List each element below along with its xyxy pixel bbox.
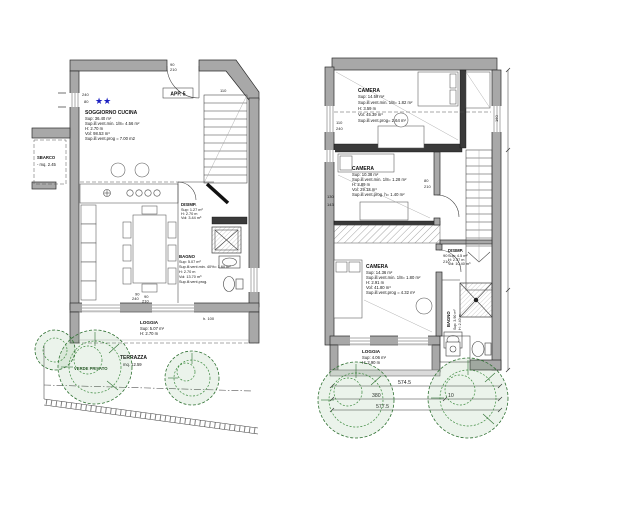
window-dim: 240 <box>336 126 343 131</box>
desk <box>378 126 424 148</box>
window-opening <box>324 150 335 162</box>
dim-total: 574.5 <box>398 380 411 386</box>
room-label-disimp-left: DISIMP. Sup: 1.27 m² H: 2.70 m Vol: 3.44… <box>181 202 203 220</box>
corridor-wall <box>434 218 440 225</box>
stair-dim: 110 <box>220 88 227 93</box>
interior-wall-b-edge <box>334 221 440 225</box>
tree <box>165 351 219 405</box>
sbarco-area: - mq. 2.45 <box>37 162 57 167</box>
chair <box>168 222 176 238</box>
stool <box>135 163 149 177</box>
bagno-title: BAGNO <box>446 311 451 327</box>
bagno-title: BAGNO <box>179 254 196 259</box>
pillow <box>450 74 456 88</box>
chair <box>416 298 432 314</box>
disimp-stat: Vol: 3.44 m³ <box>181 216 202 220</box>
floor-plan-drawing: 90 210 APP. 5 ★★ 240 80 SBARCO - mq. 2.4… <box>0 0 621 525</box>
toilet-icon <box>472 342 484 357</box>
dining-table: 90 210 <box>123 206 176 304</box>
bagno-stat: H: 2.40 m <box>458 314 462 330</box>
disimp-stat: Vol: 10.40 m³ <box>448 262 471 266</box>
disimp-title: DISIMP. <box>448 248 463 253</box>
shower <box>460 283 492 317</box>
toilet-tank <box>485 343 491 355</box>
sbarco-wall <box>32 128 70 138</box>
sbarco-title: SBARCO <box>37 155 56 160</box>
door-dim: 210 <box>424 184 431 189</box>
partition-dark <box>212 217 247 224</box>
window-dim: 90 <box>135 292 140 297</box>
loggia-stat: H: 2.70 m <box>140 331 159 336</box>
tree <box>318 362 394 438</box>
door-dim: 80 <box>424 178 429 183</box>
soggiorno-stat: Sup.ill.vent.prog = 7.00 m2 <box>85 136 136 141</box>
loggia-title: LOGGIA <box>362 349 381 354</box>
camera-top-stat: Sup.ill.vent.prog= 2.64 m² <box>358 118 406 123</box>
bagno-stat: H: 2.70 m <box>179 270 195 274</box>
dim-143: 143 <box>327 202 334 207</box>
chair <box>123 268 131 284</box>
toilet-tank <box>236 279 243 289</box>
corridor-wall <box>434 152 440 195</box>
desk <box>360 202 408 220</box>
entry-door-height-dim: 210 <box>170 67 177 72</box>
camera-top-stat: Vol: 45.39 m³ <box>358 112 383 117</box>
door-leaf-black <box>207 184 228 203</box>
loggia-wall-right <box>249 312 259 343</box>
shower-drain <box>474 298 478 302</box>
tree <box>428 358 508 438</box>
window-dim-80: 80 <box>84 99 89 104</box>
chair <box>142 206 157 214</box>
apartment-label: APP. 5 <box>170 92 185 98</box>
chair <box>168 268 176 284</box>
parapet-height: h. 100 <box>203 316 215 321</box>
sbarco-wall <box>32 182 56 189</box>
window-dim: 240 <box>132 296 139 301</box>
loggia-wall <box>432 345 440 372</box>
bagno-stat: Vol: 13.70 m³ <box>179 275 202 279</box>
room-camera-top: CAMERA Sup: 14.59 m² Sup.ill.vent.min. 1… <box>334 72 491 148</box>
chair <box>142 284 157 292</box>
boiler <box>446 342 460 356</box>
camera-low-stat: Sup.ill.vent.prog = 4.32 m² <box>366 290 416 295</box>
loggia-title: LOGGIA <box>140 320 159 325</box>
camera-top-stat: Sup: 14.59 m² <box>358 94 385 99</box>
window-opening <box>350 335 370 346</box>
disimp-door-arc <box>178 182 196 200</box>
shower <box>212 227 241 253</box>
pillow <box>336 262 347 272</box>
window-dim-160: 160 <box>494 115 499 122</box>
table-dim-l: 210 <box>142 299 149 304</box>
wall-angled <box>199 60 259 100</box>
kitchen-counter <box>80 163 178 203</box>
pillow <box>340 156 352 170</box>
wall-top <box>332 58 497 70</box>
window-opening <box>82 302 120 313</box>
camera-top-stat: Sup.ill.vent.min. 1/8= 1.82 m² <box>358 100 413 105</box>
bagno-stat: Sup: 5.07 m² <box>179 260 201 264</box>
tree <box>35 330 75 370</box>
floor-plan-canvas: 90 210 APP. 5 ★★ 240 80 SBARCO - mq. 2.4… <box>0 0 621 525</box>
camera-top-stat: H: 3.59 m <box>358 106 377 111</box>
right-unit-plan: 110 240 130 143 160 CAMERA Sup: 14.59 m²… <box>324 58 510 412</box>
window-dim-240: 240 <box>82 92 89 97</box>
door-arc <box>437 195 459 217</box>
window-opening <box>152 302 194 313</box>
stairs-right-unit <box>466 150 492 290</box>
room-camera-mid: CAMERA Sup: 10.38 m² Sup.ill.vent.min. 1… <box>338 154 459 220</box>
bagno-stat: Sup.ill.vent.min. 40%= 1.60 m² <box>179 265 231 269</box>
bagno-stat: Sup.ill.vent.prog. <box>179 280 207 284</box>
dim-130: 130 <box>327 194 334 199</box>
chair <box>168 245 176 261</box>
window-opening <box>398 335 428 346</box>
pillow <box>450 90 456 104</box>
room-label-soggiorno: SOGGIORNO CUCINA Sup: 36.40 m² Sup.ill.v… <box>85 110 140 141</box>
rating-stars: ★★ <box>95 96 111 106</box>
disimp-title: DISIMP. <box>181 202 196 207</box>
stair-wall <box>460 70 466 148</box>
chair <box>123 222 131 238</box>
stairs-left-unit: 110 <box>204 88 247 203</box>
window-opening <box>69 93 80 107</box>
room-label-disimp-right: DISIMP. Sup: 4.5 m² H: 2.37 m Vol: 10.40… <box>448 248 471 266</box>
chair <box>123 245 131 261</box>
pillow <box>349 262 360 272</box>
bagno-stat: Sup: 3.90 m² <box>453 309 457 330</box>
toilet-icon <box>224 277 235 292</box>
wall <box>70 60 167 71</box>
stool <box>111 163 125 177</box>
bedroom-wall <box>436 272 442 336</box>
window-dim: 110 <box>336 120 343 125</box>
window-opening <box>324 106 335 132</box>
cabinet-column <box>81 205 96 300</box>
interior-wall-b <box>334 225 440 243</box>
camera-mid-stat: Sup.ill.vent.prog. h= 1.40 m² <box>352 192 405 197</box>
bedroom-wall <box>436 244 442 250</box>
